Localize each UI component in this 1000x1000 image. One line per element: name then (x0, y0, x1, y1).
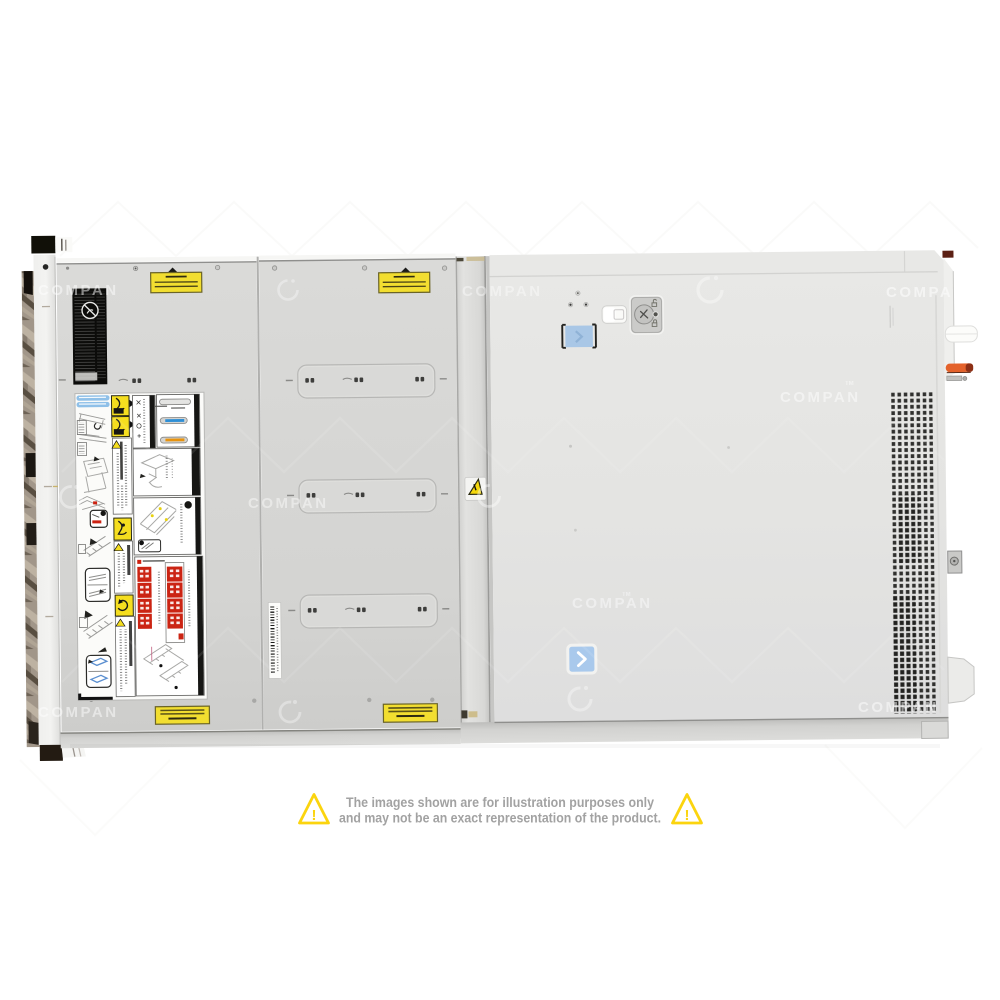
svg-text:and may not be an exact repres: and may not be an exact representation o… (339, 810, 661, 826)
svg-text:COMPAN: COMPAN (38, 282, 119, 299)
svg-text:COMPAN: COMPAN (858, 699, 939, 716)
svg-text:COMPAN: COMPAN (780, 389, 861, 406)
svg-text:COMPAN: COMPAN (572, 595, 653, 612)
svg-text:COMPAN: COMPAN (38, 704, 119, 721)
svg-text:TM: TM (845, 381, 854, 387)
svg-text:!: ! (685, 807, 690, 824)
svg-text:TM: TM (622, 592, 631, 598)
svg-text:!: ! (312, 807, 317, 824)
svg-text:COMPAN: COMPAN (886, 284, 967, 301)
svg-text:COMPAN: COMPAN (462, 283, 543, 300)
svg-text:COMPAN: COMPAN (248, 495, 329, 512)
svg-text:The images shown are for illus: The images shown are for illustration pu… (346, 794, 654, 810)
